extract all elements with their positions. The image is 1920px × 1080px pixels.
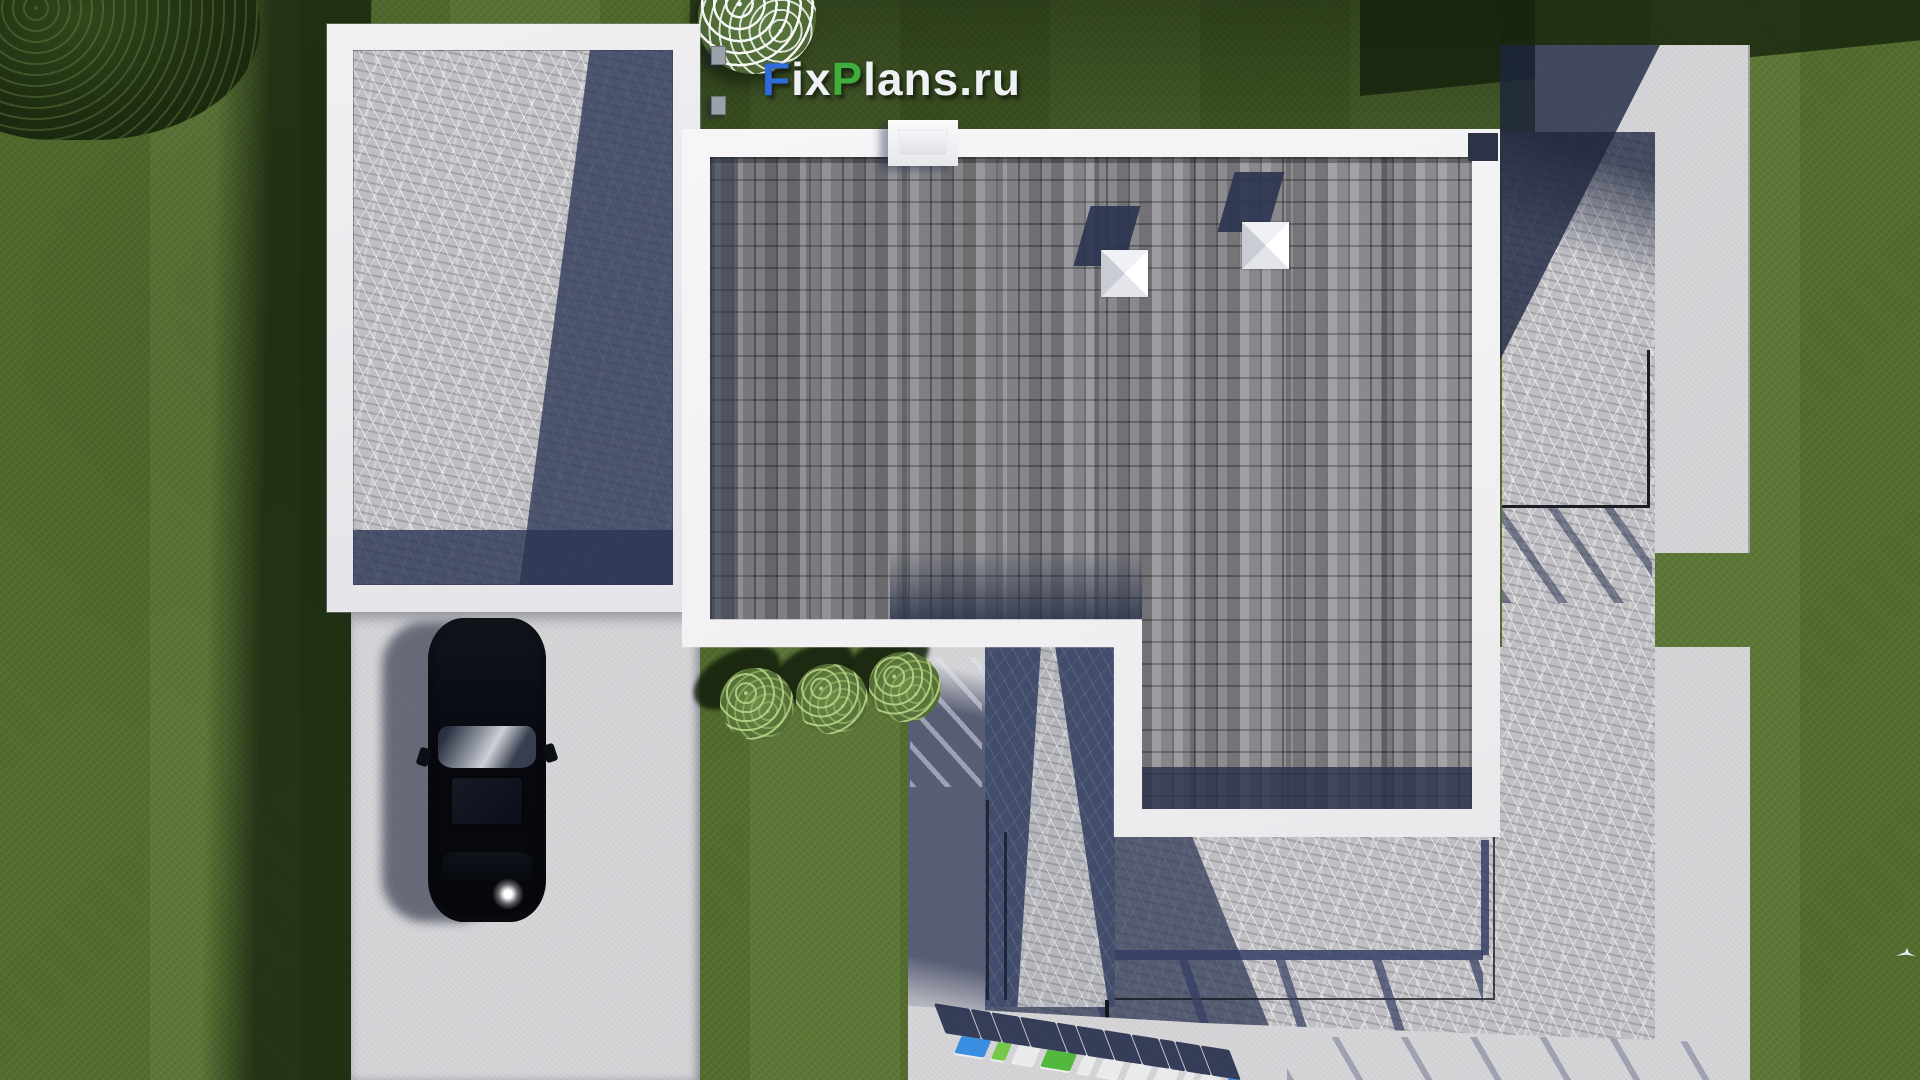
house-shadow-on-garage — [353, 50, 673, 585]
chimney-icon — [888, 120, 958, 166]
brand-letter: P — [831, 53, 863, 105]
terrace-side-path — [1655, 647, 1750, 1080]
chimney-cap — [898, 129, 948, 157]
parapet-shadow — [710, 157, 1472, 163]
ground-letter — [1180, 1072, 1196, 1080]
rooftop-vent — [711, 96, 726, 115]
aerial-house-render: FixPlans.ru — [0, 0, 1920, 1080]
parapet-shadow — [353, 530, 673, 585]
garden-bush — [869, 652, 941, 722]
car-windshield — [438, 726, 536, 768]
railing-post-shadow — [986, 800, 989, 1000]
ground-letter — [1097, 1058, 1125, 1078]
parapet-shadow — [1142, 767, 1472, 809]
terrace-edge-line — [1647, 350, 1650, 508]
parapet-shadow — [710, 157, 738, 619]
car-trunk-highlight — [492, 878, 524, 910]
brand-letter: ix — [791, 53, 831, 105]
railing-post-shadows — [1287, 1037, 1750, 1080]
parapet-shadow — [890, 549, 1142, 619]
car-sunroof — [450, 776, 524, 826]
pyramid-skylight-icon — [1101, 250, 1148, 297]
railing-shadow-band — [1481, 840, 1489, 955]
ground-letter — [1012, 1045, 1041, 1066]
brand-letter: lans.ru — [863, 53, 1021, 105]
rooftop-vent — [711, 46, 726, 65]
garden-bush — [796, 664, 868, 734]
garage-roof-gravel — [353, 50, 673, 585]
roof-corner-vent — [1468, 133, 1498, 161]
ground-letter — [991, 1042, 1012, 1061]
car-body — [428, 618, 546, 922]
brand-letter: F — [762, 53, 791, 105]
garden-bush — [720, 668, 794, 740]
ground-letter — [1077, 1055, 1097, 1074]
railing-post-shadow — [1004, 832, 1007, 1000]
pyramid-skylight-icon — [1242, 222, 1289, 269]
brand-watermark: FixPlans.ru — [762, 52, 1021, 106]
garage-roof — [327, 24, 700, 612]
car — [382, 612, 557, 934]
railing-shadow-stripes — [1502, 508, 1652, 603]
